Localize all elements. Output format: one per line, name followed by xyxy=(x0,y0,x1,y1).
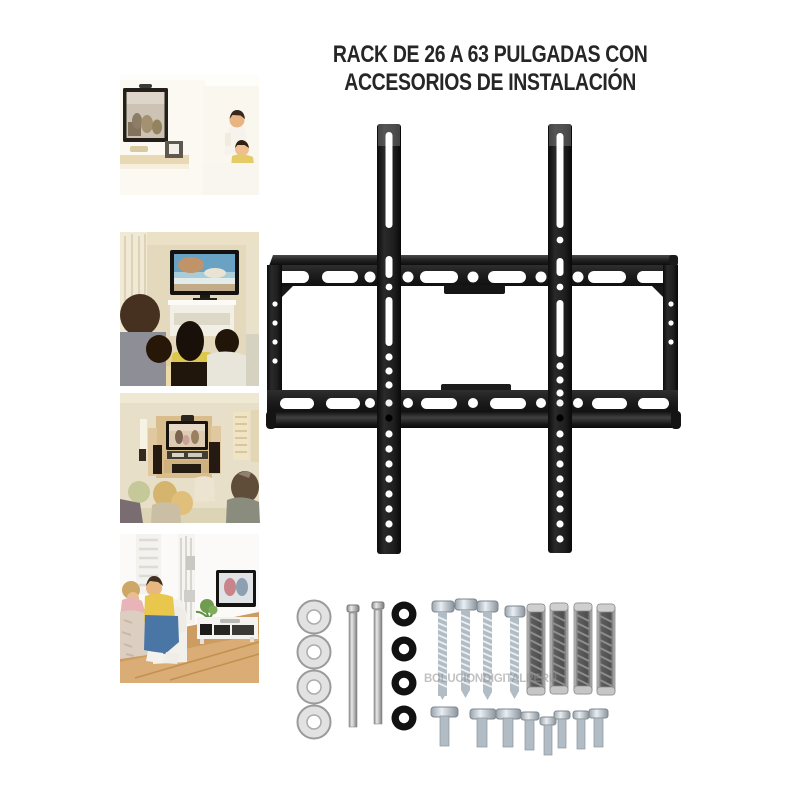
svg-text:BOLUCIONDIGITALPERU: BOLUCIONDIGITALPERU xyxy=(424,673,557,685)
